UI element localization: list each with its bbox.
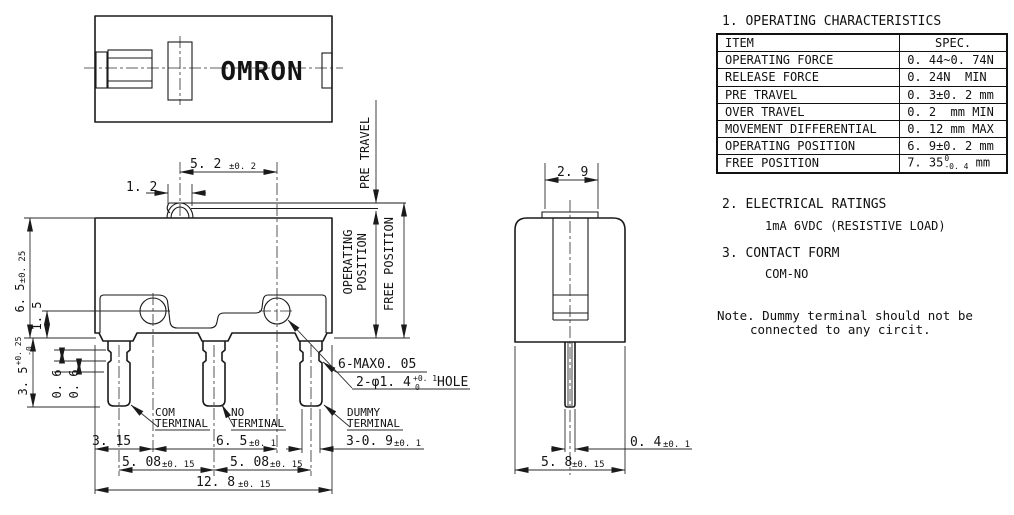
spec-row: FREE POSITION7. 350-0. 4 mm [717,155,1007,173]
spec-value: 0. 12 mm MAX [900,120,1007,137]
label-operating-position-1: OPERATING [341,229,355,294]
dim-terminal-width-tol: ±0. 1 [394,439,421,449]
spec-item: OVER TRAVEL [717,103,900,120]
label-operating-position-2: POSITION [355,233,369,291]
spec-value: 0. 2 mm MIN [900,103,1007,120]
end-view: 2. 9 0. 4 ±0. 1 5. 8 ±0. 15 [515,163,692,475]
spec-table-body: OPERATING FORCE0. 44~0. 74NRELEASE FORCE… [717,52,1007,173]
note-hole-sup: +0. 1 [413,374,437,383]
spec-row: PRE TRAVEL0. 3±0. 2 mm [717,86,1007,103]
top-view-button [168,42,192,100]
dim-end-width: 5. 8 [541,455,572,470]
dim-step1: 0. 6 [50,370,64,399]
dim-pitch2: 5. 08 [230,455,269,470]
note-burr: 6-MAX0. 05 [338,357,416,372]
spec-value: 0. 3±0. 2 mm [900,86,1007,103]
dim-terminal-length: 3. 5 [16,367,30,396]
note-hole: 2-φ1. 4 [356,375,411,390]
characteristics-table: ITEM SPEC. OPERATING FORCE0. 44~0. 74NRE… [716,33,1008,174]
spec-row: RELEASE FORCE0. 24N MIN [717,69,1007,86]
note-line-2: connected to any circit. [750,322,931,337]
note-hole-suffix: HOLE [437,375,468,390]
electrical-heading: 2. ELECTRICAL RATINGS [722,197,886,212]
col-header-spec: SPEC. [900,34,1007,52]
label-com-terminal-2: TERMINAL [155,417,208,430]
spec-row: OPERATING POSITION6. 9±0. 2 mm [717,138,1007,155]
dim-hole-offset: 3. 15 [92,434,131,449]
dim-pin-thickness: 0. 4 [630,435,661,450]
dim-total-width-tol: ±0. 15 [238,480,271,490]
top-view-spring [108,50,152,88]
dim-hole-pitch: 6. 5 [216,434,247,449]
dim-step2: 0. 6 [67,370,81,399]
note-line-1: Note. Dummy terminal should not be [717,308,973,323]
spec-item: FREE POSITION [717,155,900,173]
dim-pitch1-tol: ±0. 15 [162,460,195,470]
note-hole-sub: 0 [415,383,420,392]
spec-item: MOVEMENT DIFFERENTIAL [717,120,900,137]
characteristics-heading: 1. OPERATING CHARACTERISTICS [722,14,941,29]
label-free-position: FREE POSITION [382,217,396,311]
spec-item: OPERATING FORCE [717,52,900,69]
contact-heading: 3. CONTACT FORM [722,246,839,261]
top-view: OMRON [84,16,343,122]
dim-terminal-width: 3-0. 9 [346,434,393,449]
dim-body-height: 6. 5 [13,284,27,313]
top-view-plunger-tip [96,52,107,88]
side-view-bracket [100,295,326,333]
spec-value: 7. 350-0. 4 mm [900,155,1007,173]
side-view-housing [95,218,332,341]
dim-hole-bottom: 1. 5 [30,302,44,331]
spec-row: OPERATING FORCE0. 44~0. 74N [717,52,1007,69]
spec-value: 0. 44~0. 74N [900,52,1007,69]
spec-item: PRE TRAVEL [717,86,900,103]
spec-item: RELEASE FORCE [717,69,900,86]
dim-end-width-tol: ±0. 15 [572,460,605,470]
dim-pitch2-tol: ±0. 15 [270,460,303,470]
label-dummy-terminal-2: TERMINAL [347,417,400,430]
dim-terminal-length-sup: +0. 25 [14,336,23,365]
label-no-terminal-2: TERMINAL [231,417,284,430]
dim-pitch1: 5. 08 [122,455,161,470]
dim-hole-pitch-tol: ±0. 1 [249,439,276,449]
top-view-tab [322,53,332,88]
table-header-row: ITEM SPEC. [717,34,1007,52]
spec-value: 6. 9±0. 2 mm [900,138,1007,155]
omron-logo: OMRON [220,57,303,87]
dim-top-width-tol: ±0. 2 [229,162,256,172]
electrical-value: 1mA 6VDC (RESISTIVE LOAD) [765,219,946,233]
col-header-item: ITEM [717,34,900,52]
dim-pin-thickness-tol: ±0. 1 [663,440,690,450]
label-pre-travel: PRE TRAVEL [358,117,372,189]
spec-row: OVER TRAVEL0. 2 mm MIN [717,103,1007,120]
spec-item: OPERATING POSITION [717,138,900,155]
spec-row: MOVEMENT DIFFERENTIAL0. 12 mm MAX [717,120,1007,137]
spec-panel: 1. OPERATING CHARACTERISTICS ITEM SPEC. … [712,0,1014,511]
dim-total-width: 12. 8 [196,475,235,490]
dim-top-width: 5. 2 [190,157,221,172]
dim-body-height-tol: ±0. 25 [18,251,28,284]
dim-terminal-length-sub: -0 [25,346,34,356]
spec-value: 0. 24N MIN [900,69,1007,86]
side-view-dimensions: 5. 2 ±0. 2 1. 2 PRE TRAVEL OPERATING POS… [13,100,470,494]
dim-lever-offset: 1. 2 [126,180,157,195]
dim-plunger-width: 2. 9 [557,165,588,180]
contact-value: COM-NO [765,267,808,281]
